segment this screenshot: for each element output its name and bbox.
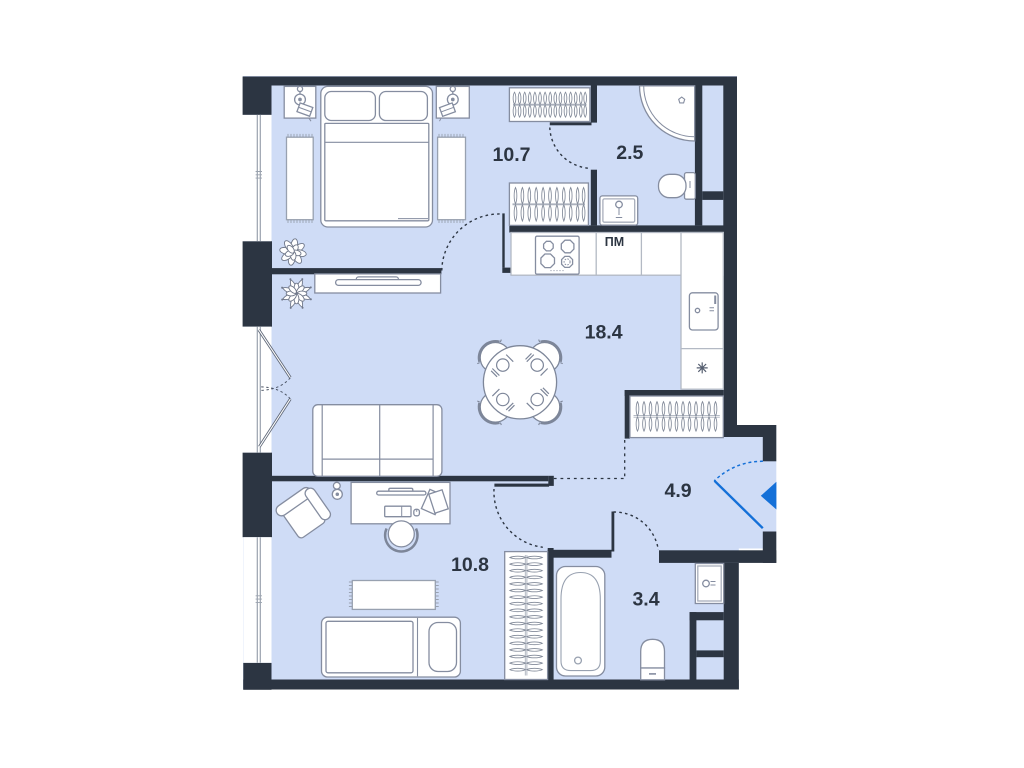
svg-text:ПМ: ПМ <box>605 235 624 249</box>
svg-text:10.7: 10.7 <box>493 144 531 166</box>
svg-text:2.5: 2.5 <box>616 142 643 164</box>
svg-text:3.4: 3.4 <box>632 589 659 611</box>
svg-text:4.9: 4.9 <box>665 480 692 502</box>
svg-text:10.8: 10.8 <box>451 554 489 576</box>
svg-text:18.4: 18.4 <box>585 322 623 344</box>
